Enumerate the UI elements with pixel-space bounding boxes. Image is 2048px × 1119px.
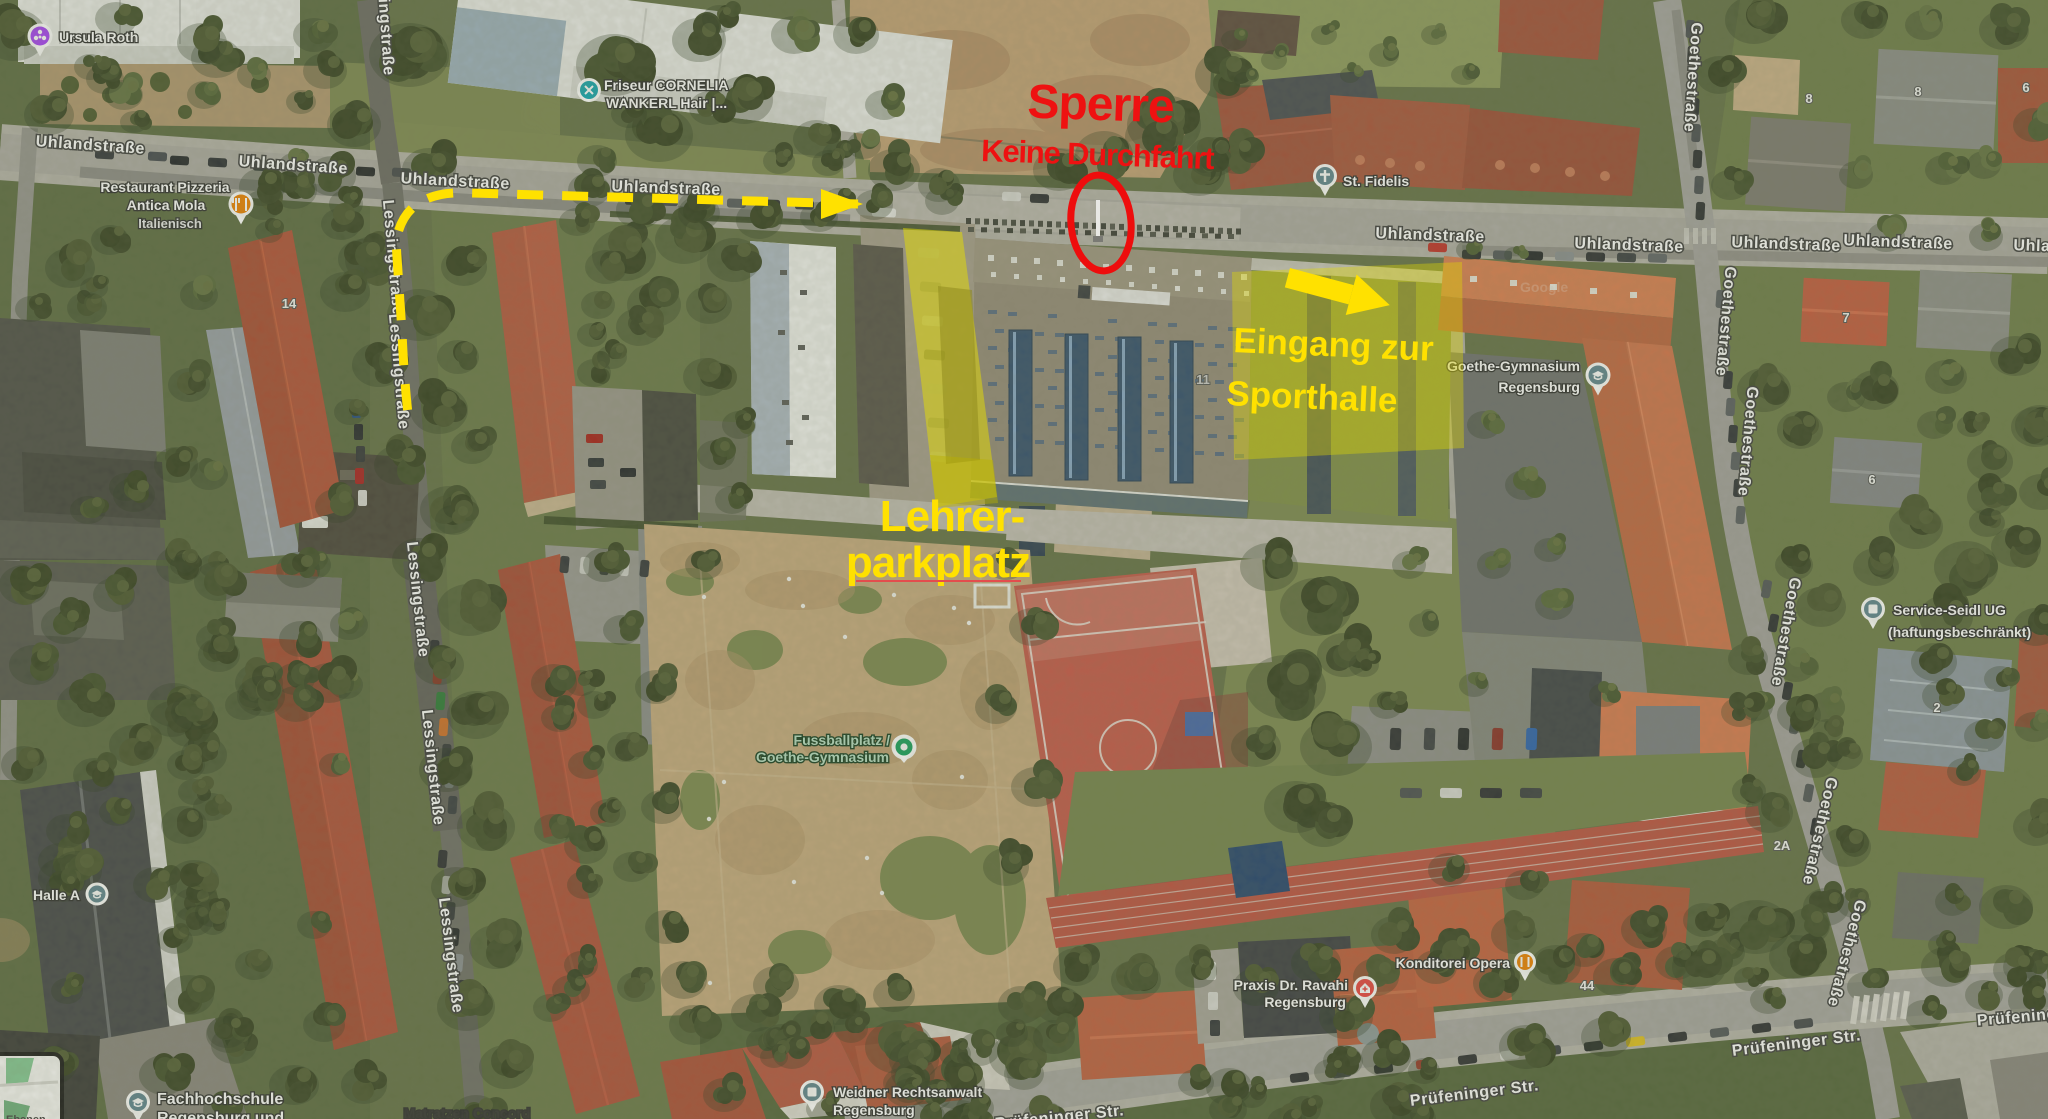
svg-text:parkplatz: parkplatz [846,538,1030,587]
svg-text:Sperre: Sperre [1027,75,1175,133]
svg-text:Lehrer-: Lehrer- [880,492,1025,541]
svg-text:Sporthalle: Sporthalle [1226,374,1399,420]
